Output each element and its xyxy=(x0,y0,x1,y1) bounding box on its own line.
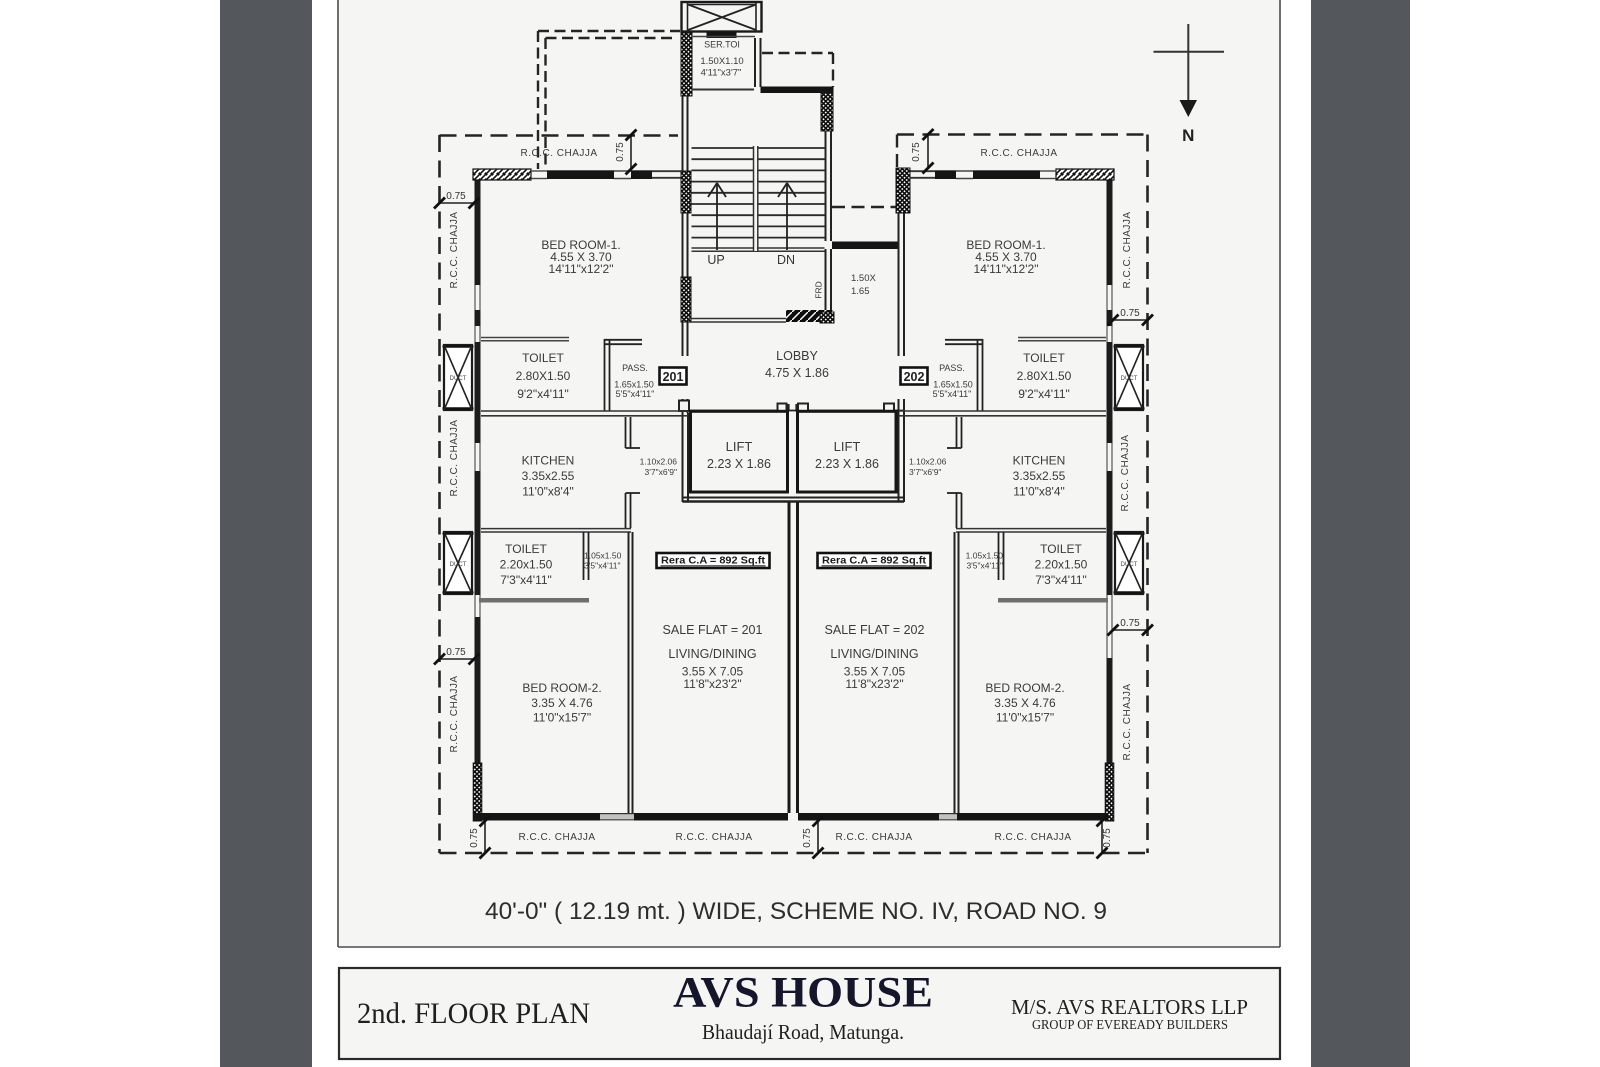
svg-text:DUCT: DUCT xyxy=(1121,376,1138,382)
svg-text:DUCT: DUCT xyxy=(450,562,467,568)
svg-text:SER.TOI: SER.TOI xyxy=(704,40,740,50)
svg-text:1.10x2.06: 1.10x2.06 xyxy=(909,457,947,467)
svg-text:0.75: 0.75 xyxy=(802,828,813,848)
svg-text:PASS.: PASS. xyxy=(622,363,648,373)
svg-text:4.75 X 1.86: 4.75 X 1.86 xyxy=(765,366,829,380)
svg-text:TOILET: TOILET xyxy=(522,351,564,365)
svg-text:40'-0" ( 12.19 mt. ) WIDE, SCH: 40'-0" ( 12.19 mt. ) WIDE, SCHEME NO. IV… xyxy=(485,898,1107,925)
svg-text:2.80X1.50: 2.80X1.50 xyxy=(1017,369,1072,383)
svg-text:11'0"x8'4": 11'0"x8'4" xyxy=(522,485,574,499)
svg-text:2.20x1.50: 2.20x1.50 xyxy=(500,558,553,572)
svg-text:BED ROOM-2.: BED ROOM-2. xyxy=(522,681,601,695)
svg-text:SALE FLAT = 201: SALE FLAT = 201 xyxy=(663,623,763,637)
svg-text:R.C.C. CHAJJA: R.C.C. CHAJJA xyxy=(1122,683,1133,760)
svg-text:9'2"x4'11": 9'2"x4'11" xyxy=(517,387,569,401)
svg-text:2.80X1.50: 2.80X1.50 xyxy=(516,369,571,383)
svg-text:4'11"x3'7": 4'11"x3'7" xyxy=(701,68,742,79)
svg-text:7'3"x4'11": 7'3"x4'11" xyxy=(1035,573,1087,587)
svg-text:11'8"x23'2": 11'8"x23'2" xyxy=(845,677,903,691)
svg-text:R.C.C. CHAJJA: R.C.C. CHAJJA xyxy=(994,832,1071,843)
svg-text:R.C.C. CHAJJA: R.C.C. CHAJJA xyxy=(1122,211,1133,288)
svg-text:0.75: 0.75 xyxy=(1102,828,1113,848)
svg-text:KITCHEN: KITCHEN xyxy=(1013,454,1066,468)
svg-text:5'5"x4'11": 5'5"x4'11" xyxy=(933,389,972,399)
svg-text:1.65: 1.65 xyxy=(851,286,870,297)
svg-text:LIVING/DINING: LIVING/DINING xyxy=(668,647,756,661)
svg-text:R.C.C. CHAJJA: R.C.C. CHAJJA xyxy=(449,419,460,496)
svg-text:Bhaudají Road, Matunga.: Bhaudají Road, Matunga. xyxy=(702,1020,904,1044)
svg-text:0.75: 0.75 xyxy=(469,828,480,848)
svg-text:1.05x1.50: 1.05x1.50 xyxy=(584,551,622,561)
svg-text:0.75: 0.75 xyxy=(1120,618,1140,629)
svg-text:1.65x1.50: 1.65x1.50 xyxy=(614,380,654,390)
svg-text:2nd. FLOOR PLAN: 2nd. FLOOR PLAN xyxy=(357,997,590,1030)
svg-text:1.50X1.10: 1.50X1.10 xyxy=(700,56,743,67)
svg-text:3'5"x4'11": 3'5"x4'11" xyxy=(966,561,1003,571)
svg-text:LIVING/DINING: LIVING/DINING xyxy=(830,647,918,661)
svg-text:M/S. AVS REALTORS LLP: M/S. AVS REALTORS LLP xyxy=(1011,995,1248,1019)
svg-text:0.75: 0.75 xyxy=(911,142,922,162)
svg-text:R.C.C. CHAJJA: R.C.C. CHAJJA xyxy=(835,832,912,843)
svg-text:N: N xyxy=(1182,126,1194,145)
svg-text:0.75: 0.75 xyxy=(446,647,466,658)
svg-text:11'0"x15'7": 11'0"x15'7" xyxy=(996,711,1054,725)
svg-text:3'5"x4'11": 3'5"x4'11" xyxy=(584,561,621,571)
svg-text:BED ROOM-2.: BED ROOM-2. xyxy=(985,681,1064,695)
svg-text:202: 202 xyxy=(904,370,925,384)
svg-text:AVS HOUSE: AVS HOUSE xyxy=(673,970,933,1017)
svg-text:11'0"x15'7": 11'0"x15'7" xyxy=(533,711,591,725)
svg-text:R.C.C. CHAJJA: R.C.C. CHAJJA xyxy=(980,148,1057,159)
svg-text:Rera C.A = 892 Sq.ft: Rera C.A = 892 Sq.ft xyxy=(661,556,766,567)
svg-text:11'8"x23'2": 11'8"x23'2" xyxy=(683,677,741,691)
svg-text:1.65x1.50: 1.65x1.50 xyxy=(933,380,973,390)
svg-text:DN: DN xyxy=(777,253,795,267)
svg-text:3.35 X 4.76: 3.35 X 4.76 xyxy=(994,696,1056,710)
svg-text:R.C.C. CHAJJA: R.C.C. CHAJJA xyxy=(675,832,752,843)
svg-text:LOBBY: LOBBY xyxy=(776,349,818,363)
svg-text:PASS.: PASS. xyxy=(939,363,965,373)
svg-text:KITCHEN: KITCHEN xyxy=(522,454,575,468)
svg-text:LIFT: LIFT xyxy=(834,439,861,454)
svg-text:R.C.C. CHAJJA: R.C.C. CHAJJA xyxy=(1120,434,1131,511)
svg-text:3'7"x6'9": 3'7"x6'9" xyxy=(909,467,941,477)
svg-text:7'3"x4'11": 7'3"x4'11" xyxy=(500,573,552,587)
svg-text:R.C.C. CHAJJA: R.C.C. CHAJJA xyxy=(520,148,597,159)
svg-text:LIFT: LIFT xyxy=(726,439,753,454)
svg-text:14'11"x12'2": 14'11"x12'2" xyxy=(974,262,1039,276)
svg-text:3'7"x6'9": 3'7"x6'9" xyxy=(645,467,677,477)
svg-text:R.C.C. CHAJJA: R.C.C. CHAJJA xyxy=(449,211,460,288)
svg-text:R.C.C. CHAJJA: R.C.C. CHAJJA xyxy=(518,832,595,843)
svg-text:TOILET: TOILET xyxy=(1040,542,1082,556)
svg-text:3.35x2.55: 3.35x2.55 xyxy=(522,469,575,483)
svg-text:0.75: 0.75 xyxy=(615,142,626,162)
svg-text:GROUP OF EVEREADY BUILDERS: GROUP OF EVEREADY BUILDERS xyxy=(1032,1017,1228,1032)
svg-text:201: 201 xyxy=(663,370,684,384)
svg-text:3.35 X 4.76: 3.35 X 4.76 xyxy=(531,696,593,710)
svg-text:SALE FLAT = 202: SALE FLAT = 202 xyxy=(825,623,925,637)
svg-text:0.75: 0.75 xyxy=(446,191,466,202)
svg-text:TOILET: TOILET xyxy=(505,542,547,556)
svg-text:0.75: 0.75 xyxy=(1120,308,1140,319)
svg-text:1.10x2.06: 1.10x2.06 xyxy=(640,457,678,467)
svg-text:FRD: FRD xyxy=(814,281,824,298)
svg-text:3.35x2.55: 3.35x2.55 xyxy=(1013,469,1066,483)
svg-text:1.05x1.50: 1.05x1.50 xyxy=(966,551,1004,561)
svg-text:TOILET: TOILET xyxy=(1023,351,1065,365)
svg-text:1.50X: 1.50X xyxy=(851,273,876,284)
svg-text:2.20x1.50: 2.20x1.50 xyxy=(1035,558,1088,572)
svg-text:R.C.C. CHAJJA: R.C.C. CHAJJA xyxy=(449,675,460,752)
svg-text:DUCT: DUCT xyxy=(1121,562,1138,568)
svg-text:2.23 X 1.86: 2.23 X 1.86 xyxy=(707,457,771,471)
svg-text:11'0"x8'4": 11'0"x8'4" xyxy=(1013,485,1065,499)
svg-text:5'5"x4'11": 5'5"x4'11" xyxy=(616,389,655,399)
svg-text:14'11"x12'2": 14'11"x12'2" xyxy=(549,262,614,276)
svg-text:Rera C.A = 892 Sq.ft: Rera C.A = 892 Sq.ft xyxy=(822,556,927,567)
svg-text:9'2"x4'11": 9'2"x4'11" xyxy=(1018,387,1070,401)
svg-text:2.23 X 1.86: 2.23 X 1.86 xyxy=(815,457,879,471)
svg-text:DUCT: DUCT xyxy=(450,376,467,382)
svg-text:UP: UP xyxy=(707,253,724,267)
